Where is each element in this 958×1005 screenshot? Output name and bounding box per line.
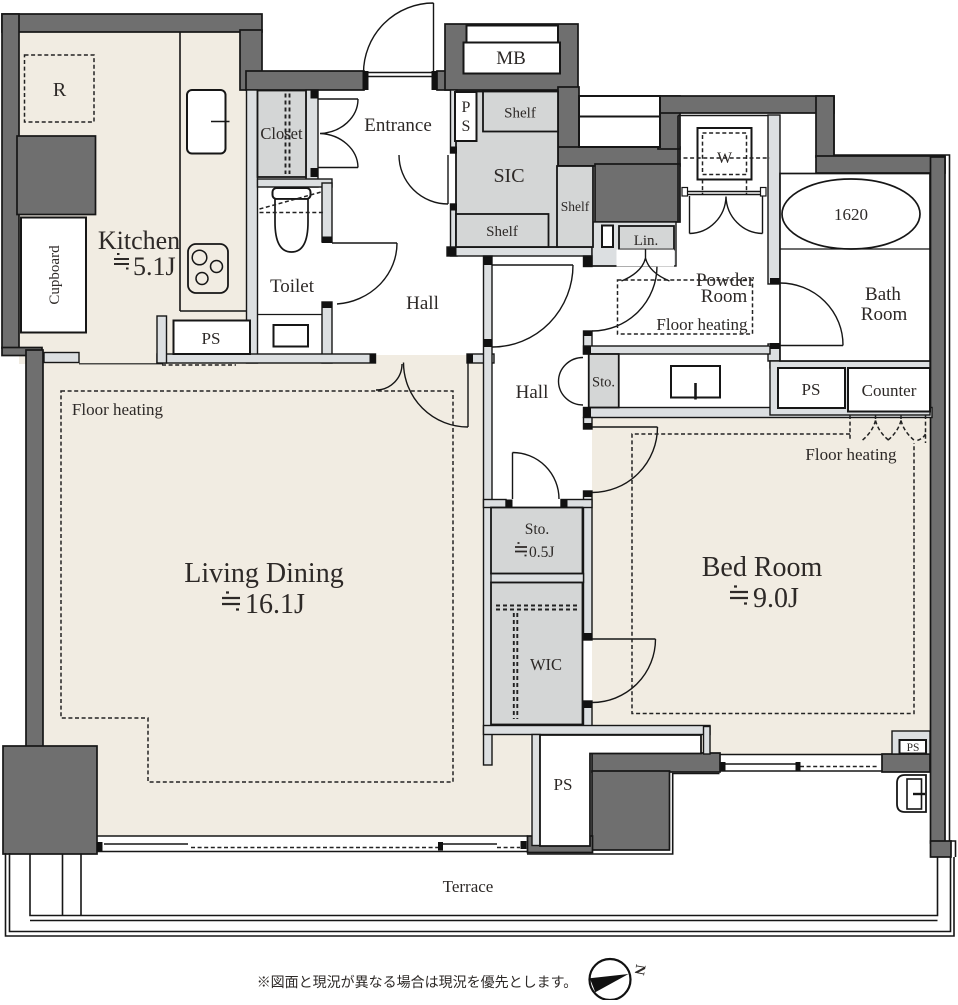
svg-text:Cupboard: Cupboard [47, 245, 63, 305]
svg-text:Counter: Counter [862, 381, 917, 400]
svg-text:Hall: Hall [406, 293, 439, 314]
svg-text:Floor heating: Floor heating [72, 400, 164, 419]
svg-text:WIC: WIC [530, 655, 562, 674]
svg-text:Living Dining: Living Dining [184, 558, 343, 589]
svg-text:Hall: Hall [516, 382, 549, 403]
svg-text:PS: PS [554, 775, 573, 794]
svg-text:9.0J: 9.0J [753, 583, 799, 614]
svg-text:0.5J: 0.5J [529, 544, 554, 561]
svg-text:Kitchen: Kitchen [98, 226, 180, 255]
svg-text:Shelf: Shelf [504, 106, 536, 122]
svg-text:5.1J: 5.1J [133, 252, 176, 281]
svg-text:Sto.: Sto. [592, 375, 615, 391]
svg-text:Lin.: Lin. [634, 233, 659, 249]
svg-text:1620: 1620 [834, 205, 868, 224]
svg-text:Sto.: Sto. [525, 521, 550, 538]
svg-text:Shelf: Shelf [486, 224, 518, 240]
svg-text:Bed Room: Bed Room [702, 552, 823, 583]
svg-text:R: R [53, 79, 67, 101]
svg-text:SIC: SIC [493, 165, 524, 187]
svg-text:Floor heating: Floor heating [805, 445, 897, 464]
svg-text:Floor heating: Floor heating [656, 315, 748, 334]
svg-text:PS: PS [907, 742, 920, 754]
svg-text:Entrance: Entrance [364, 115, 432, 136]
svg-text:Room: Room [701, 286, 748, 307]
svg-text:Terrace: Terrace [443, 877, 494, 896]
svg-text:PS: PS [202, 329, 221, 348]
svg-text:S: S [462, 118, 471, 135]
svg-text:MB: MB [496, 48, 526, 69]
svg-text:Bath: Bath [865, 284, 901, 305]
svg-text:16.1J: 16.1J [245, 589, 305, 620]
svg-text:Toilet: Toilet [270, 276, 315, 297]
svg-text:Closet: Closet [260, 124, 303, 143]
svg-text:P: P [462, 99, 471, 116]
svg-text:PS: PS [802, 380, 821, 399]
svg-text:※図面と現況が異なる場合は現況を優先とします。: ※図面と現況が異なる場合は現況を優先とします。 [257, 975, 578, 991]
svg-text:Room: Room [861, 304, 908, 325]
svg-text:Shelf: Shelf [561, 199, 590, 214]
svg-text:W: W [717, 150, 733, 167]
